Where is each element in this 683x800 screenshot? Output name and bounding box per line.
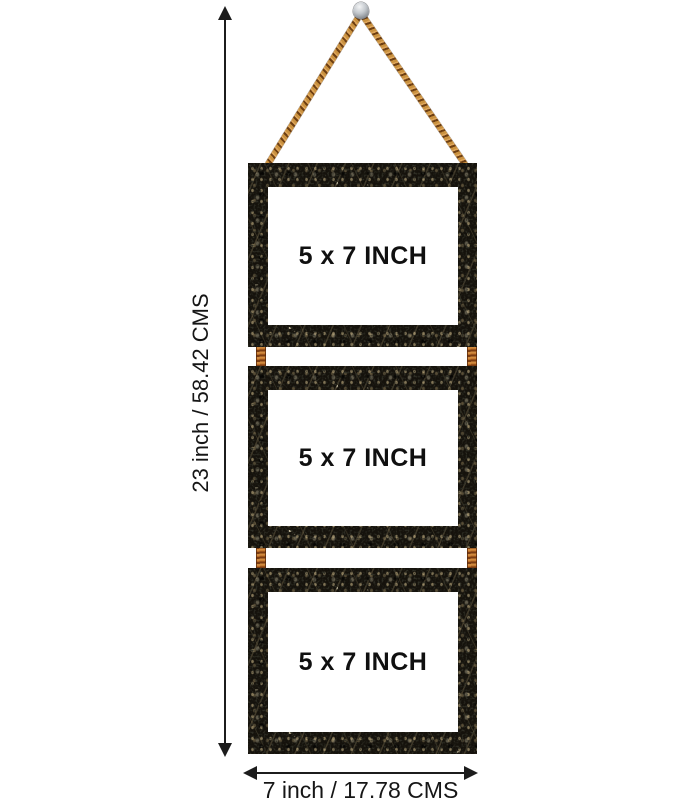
product-dimension-image: 23 inch / 58.42 CMS 5 x 7 INCH 5 x 7 INC… bbox=[0, 0, 683, 800]
photo-window: 5 x 7 INCH bbox=[268, 592, 458, 732]
photo-frame: 5 x 7 INCH bbox=[248, 568, 477, 754]
width-dimension-line bbox=[252, 772, 470, 774]
height-dimension-line bbox=[224, 14, 226, 750]
frame-size-label: 5 x 7 INCH bbox=[299, 648, 428, 677]
height-dimension-label: 23 inch / 58.42 CMS bbox=[188, 283, 214, 503]
hanging-rope-left bbox=[264, 11, 363, 167]
frame-size-label: 5 x 7 INCH bbox=[299, 242, 428, 271]
arrowhead-up-icon bbox=[218, 6, 232, 20]
width-dimension-label: 7 inch / 17.78 CMS bbox=[240, 778, 481, 800]
photo-window: 5 x 7 INCH bbox=[268, 390, 458, 526]
wall-pin bbox=[353, 2, 369, 19]
photo-frame: 5 x 7 INCH bbox=[248, 163, 477, 347]
photo-window: 5 x 7 INCH bbox=[268, 187, 458, 325]
frame-size-label: 5 x 7 INCH bbox=[299, 444, 428, 473]
photo-frame: 5 x 7 INCH bbox=[248, 366, 477, 548]
arrowhead-down-icon bbox=[218, 743, 232, 757]
hanging-rope-right bbox=[359, 11, 469, 168]
